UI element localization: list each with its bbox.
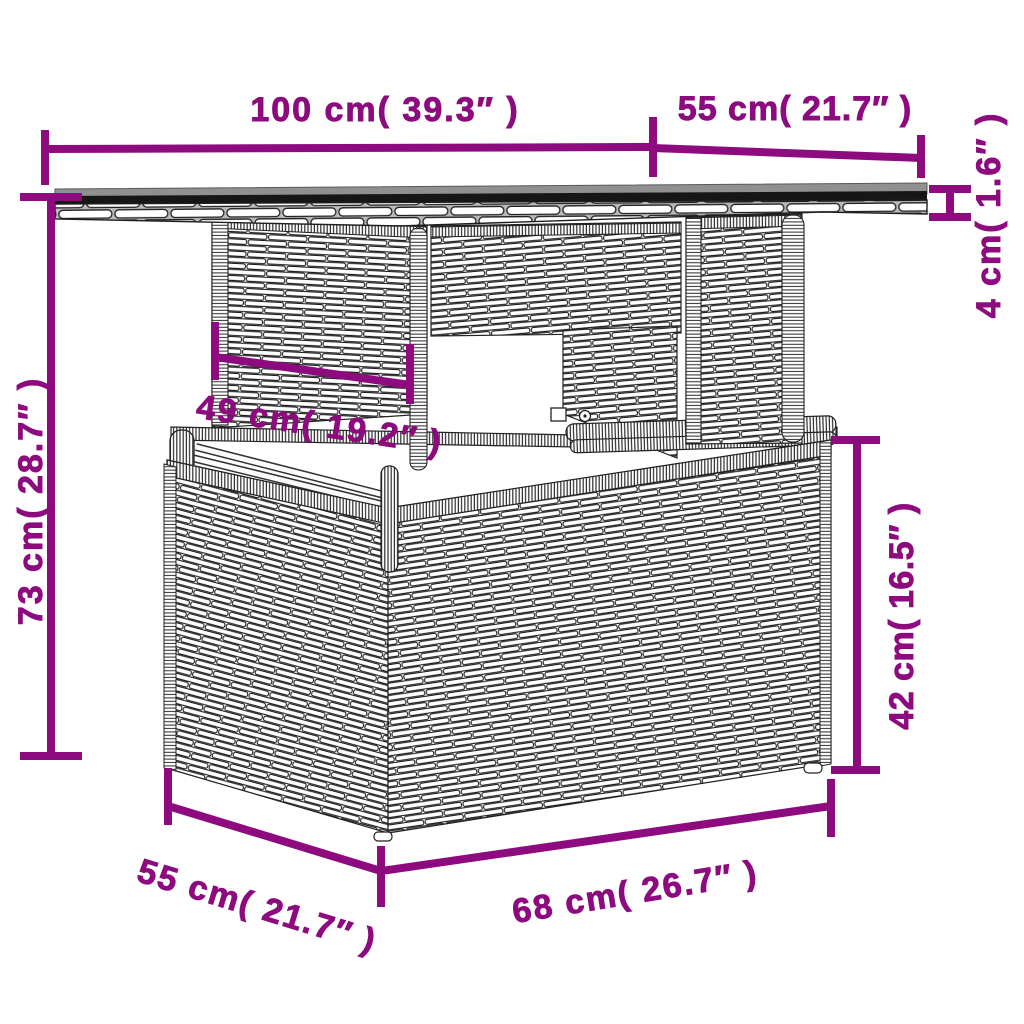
svg-text:73 cm( 28.7″ ): 73 cm( 28.7″ )	[12, 377, 50, 625]
svg-text:55 cm( 21.7″ ): 55 cm( 21.7″ )	[678, 90, 912, 128]
svg-text:100 cm( 39.3″ ): 100 cm( 39.3″ )	[250, 91, 519, 129]
svg-text:4 cm( 1.6″ ): 4 cm( 1.6″ )	[970, 112, 1008, 319]
svg-text:42 cm( 16.5″ ): 42 cm( 16.5″ )	[883, 502, 921, 729]
